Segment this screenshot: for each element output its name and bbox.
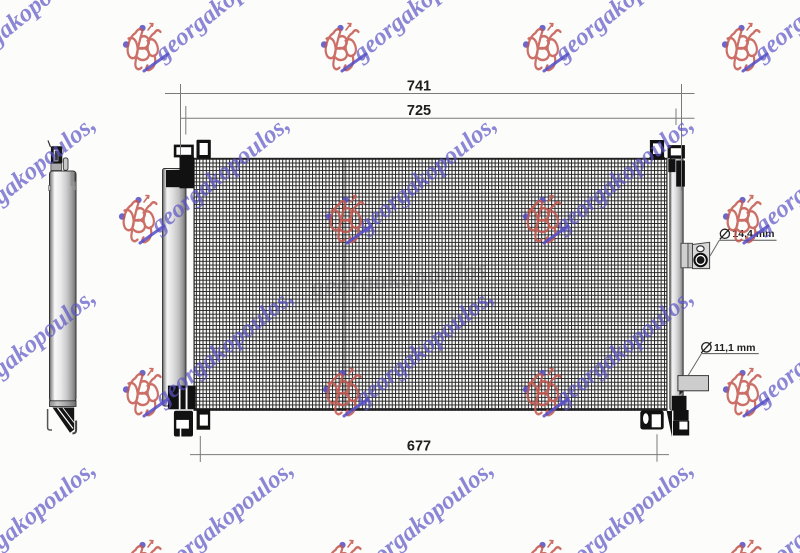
- svg-text:11,1 mm: 11,1 mm: [714, 342, 755, 354]
- svg-text:677: 677: [407, 439, 431, 455]
- svg-text:741: 741: [407, 79, 431, 95]
- svg-text:725: 725: [407, 103, 431, 119]
